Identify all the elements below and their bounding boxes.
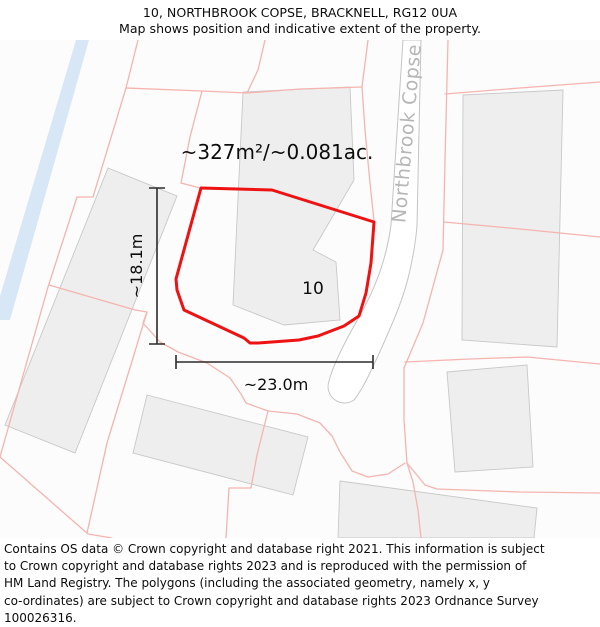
building-plot10-block bbox=[233, 87, 354, 325]
plot-number-label: 10 bbox=[302, 279, 324, 299]
footer-line: to Crown copyright and database rights 2… bbox=[4, 558, 596, 575]
building bbox=[462, 90, 563, 347]
page-subtitle: Map shows position and indicative extent… bbox=[0, 21, 600, 37]
height-dimension-label: ~18.1m bbox=[127, 234, 146, 299]
width-dimension-label: ~23.0m bbox=[244, 375, 309, 394]
page-title: 10, NORTHBROOK COPSE, BRACKNELL, RG12 0U… bbox=[0, 5, 600, 21]
map-header: 10, NORTHBROOK COPSE, BRACKNELL, RG12 0U… bbox=[0, 0, 600, 40]
building bbox=[447, 365, 533, 472]
footer-line: co-ordinates) are subject to Crown copyr… bbox=[4, 593, 596, 610]
copyright-footer: Contains OS data © Crown copyright and d… bbox=[0, 538, 600, 627]
area-label: ~327m²/~0.081ac. bbox=[181, 140, 374, 164]
map-image: Northbrook Copse ~18.1m ~23.0m ~327m²/~0… bbox=[0, 40, 600, 538]
property-map: Northbrook Copse ~18.1m ~23.0m ~327m²/~0… bbox=[0, 40, 600, 538]
footer-line: 100026316. bbox=[4, 610, 596, 627]
footer-line: HM Land Registry. The polygons (includin… bbox=[4, 575, 596, 592]
footer-line: Contains OS data © Crown copyright and d… bbox=[4, 541, 596, 558]
